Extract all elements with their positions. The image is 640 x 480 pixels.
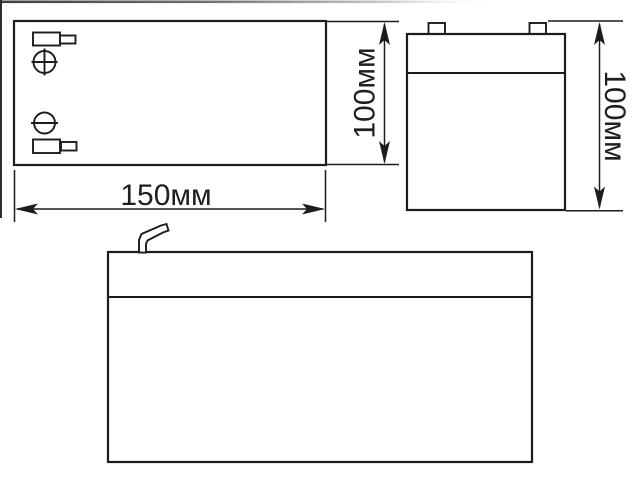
width-dimension-label: 150мм xyxy=(120,179,211,212)
side-view-terminal-left xyxy=(429,23,446,34)
top-view xyxy=(14,21,326,165)
negative-terminal-tab xyxy=(33,140,77,154)
negative-terminal-tab-body xyxy=(33,140,60,154)
battery-drawing: 150мм 100мм 100мм xyxy=(0,0,640,480)
front-view-terminal-blade xyxy=(139,224,169,253)
technical-drawing-canvas: 150мм 100мм 100мм xyxy=(0,0,640,480)
top-view-height-dimension-label: 100мм xyxy=(349,47,382,138)
side-view-outline xyxy=(407,34,565,210)
front-view-outline xyxy=(108,252,532,462)
front-view xyxy=(108,224,532,462)
width-dimension: 150мм xyxy=(15,170,326,222)
positive-terminal-tab-body xyxy=(33,33,60,46)
top-view-height-dimension: 100мм xyxy=(327,22,399,165)
overall-height-dimension-label: 100мм xyxy=(598,70,631,161)
negative-terminal-tab-blade xyxy=(61,142,77,151)
side-view-terminal-right xyxy=(530,23,547,34)
positive-terminal-tab-blade xyxy=(60,36,76,44)
side-view xyxy=(407,23,565,210)
crop-border-top-line xyxy=(0,1,505,4)
